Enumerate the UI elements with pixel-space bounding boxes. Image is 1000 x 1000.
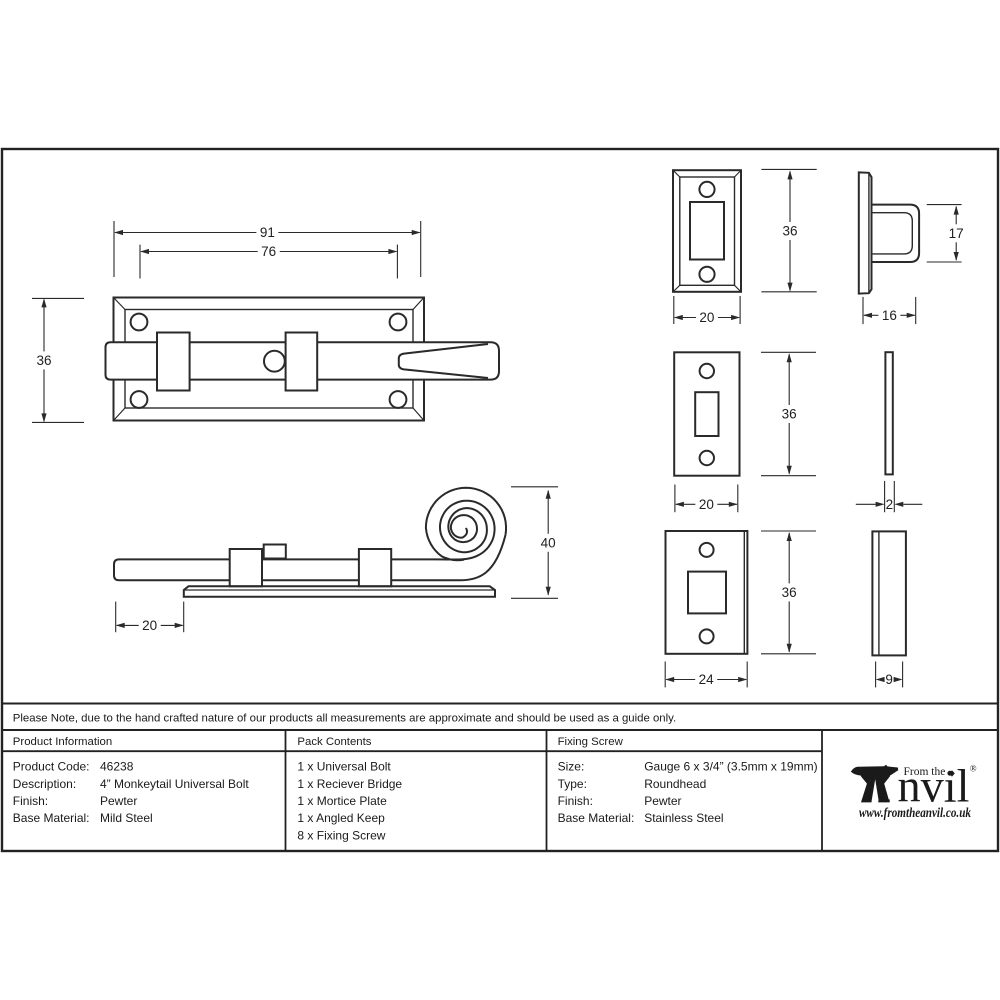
svg-text:76: 76 (261, 244, 276, 259)
svg-text:®: ® (970, 764, 977, 774)
svg-text:8 x Fixing Screw: 8 x Fixing Screw (297, 828, 385, 842)
svg-text:20: 20 (142, 618, 157, 633)
svg-text:Product Information: Product Information (13, 736, 112, 748)
svg-text:2: 2 (886, 497, 894, 512)
svg-text:1 x Reciever Bridge: 1 x Reciever Bridge (297, 777, 402, 791)
svg-text:20: 20 (699, 497, 714, 512)
svg-text:16: 16 (882, 308, 897, 323)
svg-text:Please Note, due to the hand c: Please Note, due to the hand crafted nat… (13, 713, 676, 725)
svg-text:91: 91 (260, 225, 275, 240)
svg-text:1 x Angled Keep: 1 x Angled Keep (297, 811, 385, 825)
svg-text:Mild Steel: Mild Steel (100, 811, 153, 825)
svg-text:36: 36 (36, 353, 51, 368)
svg-text:Pewter: Pewter (100, 794, 137, 808)
svg-text:4” Monkeytail Universal Bolt: 4” Monkeytail Universal Bolt (100, 777, 249, 791)
svg-text:Product Code:: Product Code: (13, 760, 90, 774)
svg-text:24: 24 (699, 672, 715, 687)
svg-text:1 x Mortice Plate: 1 x Mortice Plate (297, 794, 387, 808)
svg-text:9: 9 (885, 672, 893, 687)
svg-text:36: 36 (782, 224, 797, 239)
svg-text:Finish:: Finish: (13, 794, 48, 808)
svg-text:Base Material:: Base Material: (558, 811, 635, 825)
svg-text:www.fromtheanvil.co.uk: www.fromtheanvil.co.uk (859, 806, 971, 821)
svg-text:nvil: nvil (898, 761, 970, 813)
svg-text:Finish:: Finish: (558, 794, 593, 808)
svg-text:36: 36 (782, 407, 797, 422)
svg-text:Stainless Steel: Stainless Steel (644, 811, 723, 825)
svg-text:17: 17 (949, 226, 964, 241)
svg-text:20: 20 (699, 310, 714, 325)
svg-text:Base Material:: Base Material: (13, 811, 90, 825)
svg-text:36: 36 (782, 585, 797, 600)
svg-text:40: 40 (541, 535, 556, 550)
svg-text:Pack Contents: Pack Contents (297, 736, 371, 748)
svg-text:46238: 46238 (100, 760, 134, 774)
svg-text:Pewter: Pewter (644, 794, 681, 808)
svg-text:Size:: Size: (558, 760, 585, 774)
svg-text:1 x Universal Bolt: 1 x Universal Bolt (297, 760, 391, 774)
svg-text:Fixing Screw: Fixing Screw (558, 736, 624, 748)
svg-text:Roundhead: Roundhead (644, 777, 706, 791)
svg-text:Description:: Description: (13, 777, 76, 791)
svg-text:Gauge 6 x 3/4” (3.5mm x 19mm): Gauge 6 x 3/4” (3.5mm x 19mm) (644, 760, 817, 774)
svg-text:Type:: Type: (558, 777, 587, 791)
